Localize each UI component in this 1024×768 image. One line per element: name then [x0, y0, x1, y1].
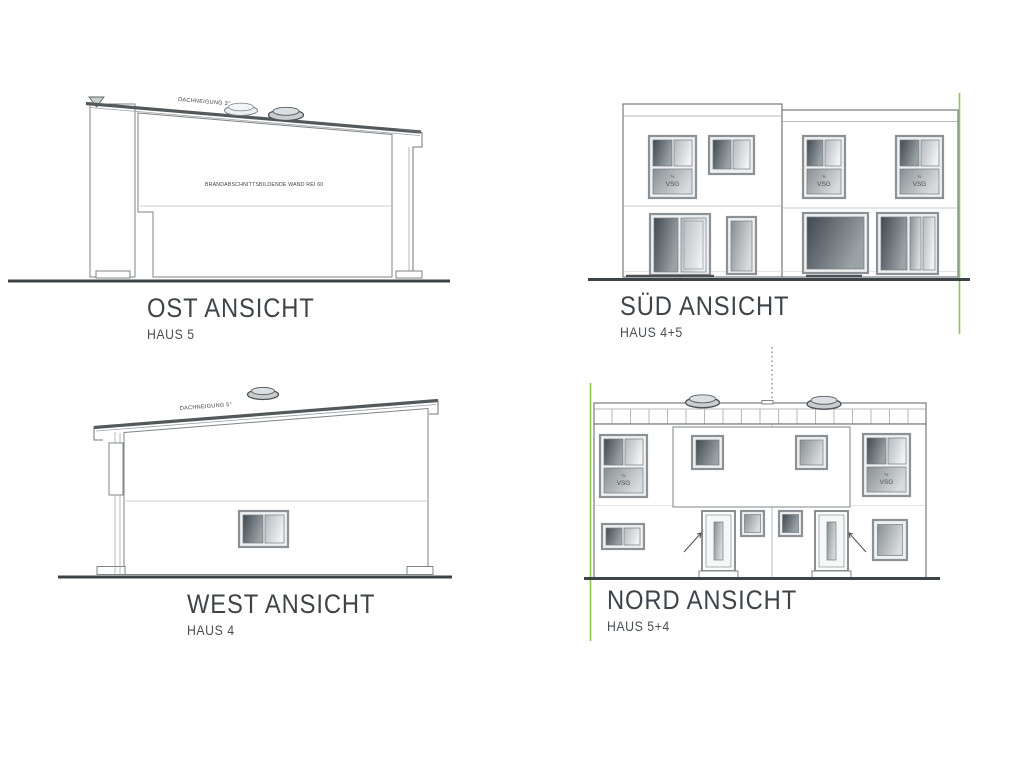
vsg-label: VSG — [666, 181, 680, 188]
ost-subtitle: HAUS 5 — [147, 326, 315, 342]
vsg-mark: % — [622, 473, 626, 478]
west-downspout — [94, 426, 123, 574]
sued-glazed-door-single — [727, 217, 756, 274]
vsg-mark: % — [822, 174, 826, 179]
sued-terrace-door-wide — [650, 214, 710, 275]
vsg-label: VSG — [913, 181, 927, 188]
sued-vsg-window-right: % VSG — [896, 136, 943, 198]
ost-wall — [138, 113, 392, 277]
nord-window-low-right — [873, 520, 907, 560]
nord-label-block: NORD ANSICHT HAUS 5+4 — [607, 586, 797, 634]
ost-skylight-dome-dark — [269, 107, 304, 120]
ost-downspout — [395, 129, 422, 279]
nord-entry-door-right — [812, 511, 851, 578]
nord-bay-window-left — [692, 436, 723, 469]
nord-entry-door-left — [699, 511, 738, 578]
nord-subtitle: HAUS 5+4 — [607, 618, 797, 634]
nord-skylight-dome-right — [807, 396, 841, 409]
vsg-label: VSG — [880, 479, 894, 486]
ost-firewall-base — [96, 271, 130, 278]
west-label-block: WEST ANSICHT HAUS 4 — [187, 590, 375, 638]
sued-subtitle: HAUS 4+5 — [620, 324, 789, 340]
ost-wall-note: BRANDABSCHNITTSBILDENDE WAND REI 60 — [205, 182, 323, 188]
elevation-linework: DACHNEIGUNG 3° BRANDABSCHNITTSBILDENDE W… — [0, 0, 1024, 768]
west-subtitle: HAUS 4 — [187, 622, 375, 638]
nord-window-low-left — [602, 524, 644, 549]
sued-picture-window — [803, 213, 868, 273]
west-roof-note: DACHNEIGUNG 5° — [180, 402, 233, 412]
vsg-mark: % — [671, 174, 675, 179]
vsg-mark: % — [918, 174, 922, 179]
sued-window-small — [709, 136, 754, 174]
ost-title: OST ANSICHT — [147, 294, 315, 322]
vsg-mark: % — [885, 472, 889, 477]
sued-terrace-door-right — [877, 213, 938, 274]
sued-label-block: SÜD ANSICHT HAUS 4+5 — [620, 292, 789, 340]
sued-vsg-window-left: % VSG — [649, 136, 696, 198]
west-skylight-dome — [248, 387, 279, 399]
ost-label-block: OST ANSICHT HAUS 5 — [147, 294, 315, 342]
elevation-ost: DACHNEIGUNG 3° BRANDABSCHNITTSBILDENDE W… — [8, 97, 450, 281]
sued-title: SÜD ANSICHT — [620, 292, 789, 320]
west-foundation-right — [407, 567, 433, 575]
vsg-label: VSG — [617, 480, 631, 487]
west-wall — [124, 409, 428, 575]
nord-title: NORD ANSICHT — [607, 586, 797, 614]
nord-window-beside-door-right — [779, 511, 802, 536]
elevation-sheet: DACHNEIGUNG 3° BRANDABSCHNITTSBILDENDE W… — [0, 0, 1024, 768]
west-window — [239, 511, 288, 547]
west-title: WEST ANSICHT — [187, 590, 375, 618]
elevation-west: DACHNEIGUNG 5° — [58, 387, 452, 577]
sued-vsg-window-mid: % VSG — [803, 136, 845, 198]
nord-parapet-band — [594, 401, 926, 425]
nord-vsg-window-left: % VSG — [600, 435, 647, 497]
ost-roof-note: DACHNEIGUNG 3° — [178, 97, 231, 107]
nord-vsg-window-right: % VSG — [863, 434, 910, 496]
nord-bay-window-right — [796, 436, 827, 469]
vsg-label: VSG — [817, 181, 831, 188]
ost-firewall-strip — [90, 104, 135, 277]
nord-skylight-dome-left — [686, 395, 720, 408]
west-foundation-left — [97, 567, 125, 575]
nord-window-beside-door-left — [741, 511, 764, 536]
